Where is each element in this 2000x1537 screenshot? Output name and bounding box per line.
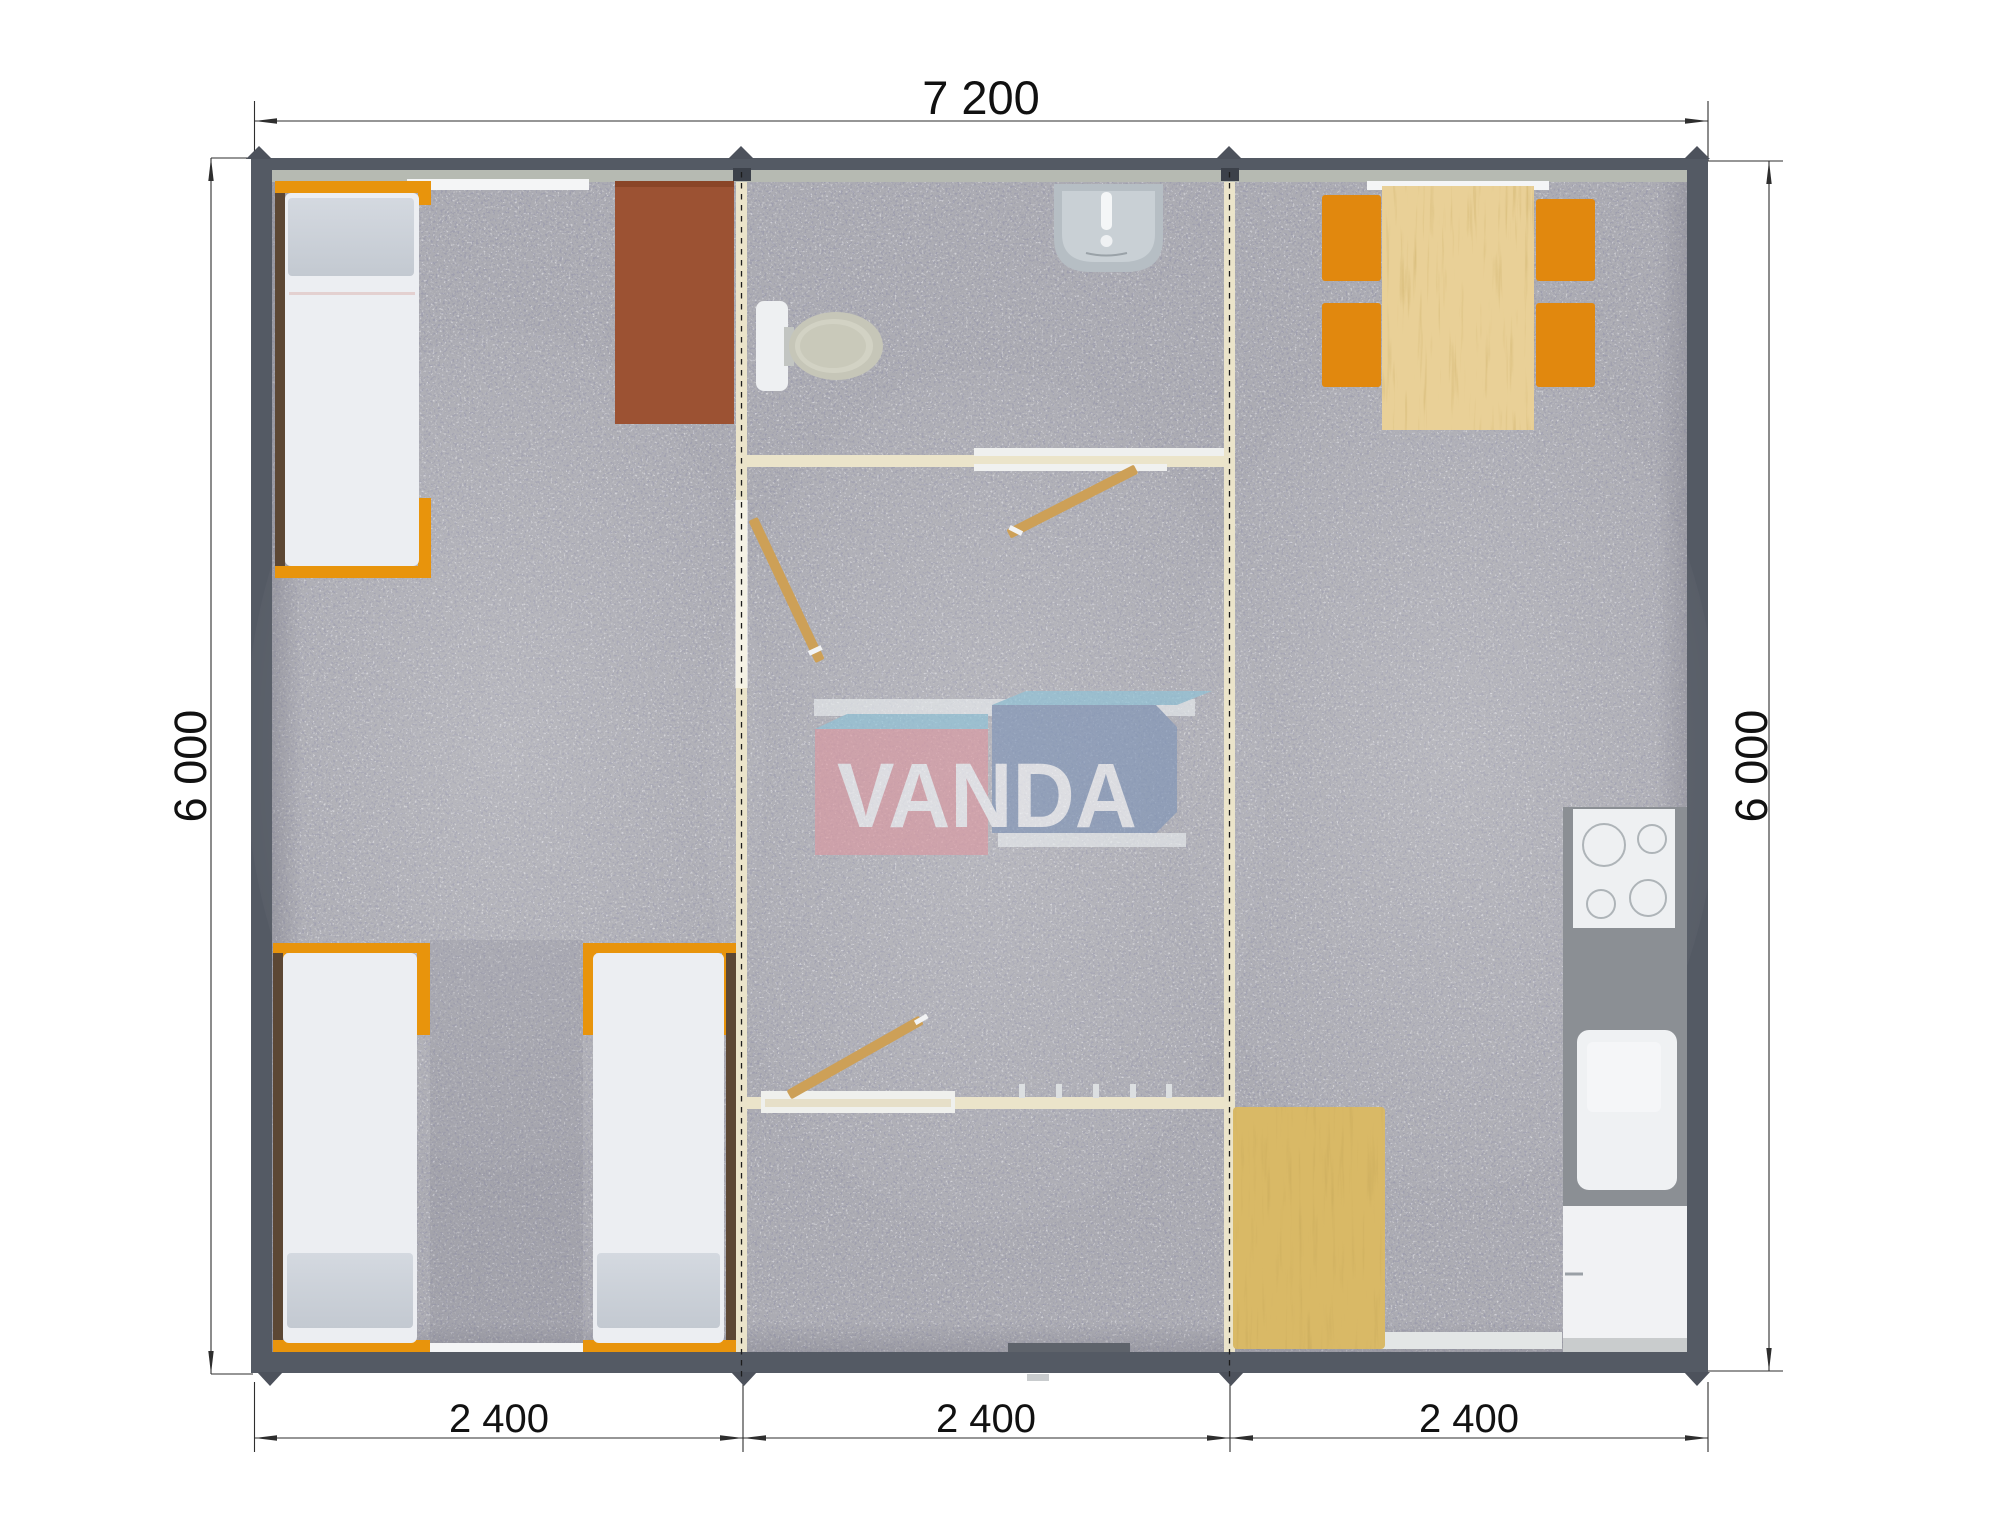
svg-text:2 400: 2 400 (449, 1397, 549, 1441)
svg-text:VANDA: VANDA (837, 745, 1137, 847)
svg-text:6 000: 6 000 (1726, 710, 1777, 823)
svg-text:6 000: 6 000 (165, 710, 216, 823)
svg-text:2 400: 2 400 (936, 1397, 1036, 1441)
svg-text:7 200: 7 200 (922, 71, 1040, 124)
svg-text:2 400: 2 400 (1419, 1397, 1519, 1441)
